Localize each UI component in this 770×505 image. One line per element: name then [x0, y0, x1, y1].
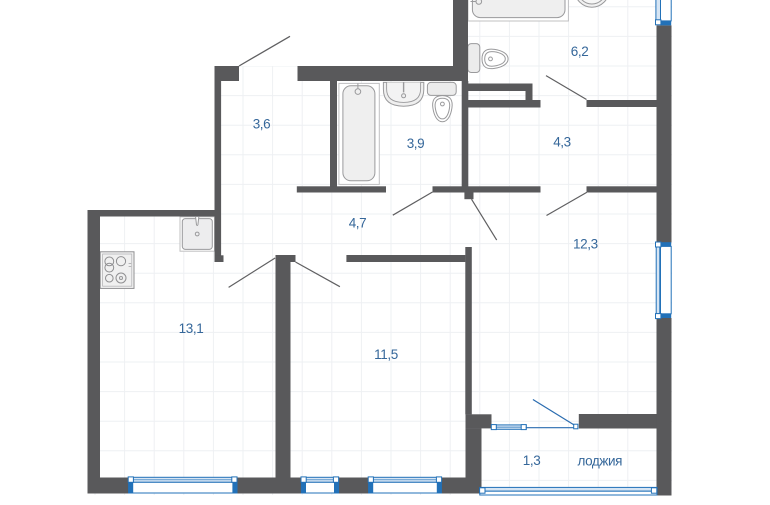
svg-text:11,5: 11,5 [374, 347, 398, 362]
svg-text:1,3: 1,3 [523, 453, 541, 468]
svg-text:12,3: 12,3 [573, 236, 598, 251]
svg-text:3,9: 3,9 [407, 136, 425, 151]
svg-text:4,7: 4,7 [349, 216, 367, 231]
svg-text:6,2: 6,2 [571, 44, 589, 59]
svg-text:лоджия: лоджия [577, 453, 622, 468]
svg-text:3,6: 3,6 [253, 117, 271, 132]
svg-text:13,1: 13,1 [179, 321, 204, 336]
svg-text:4,3: 4,3 [553, 135, 571, 150]
